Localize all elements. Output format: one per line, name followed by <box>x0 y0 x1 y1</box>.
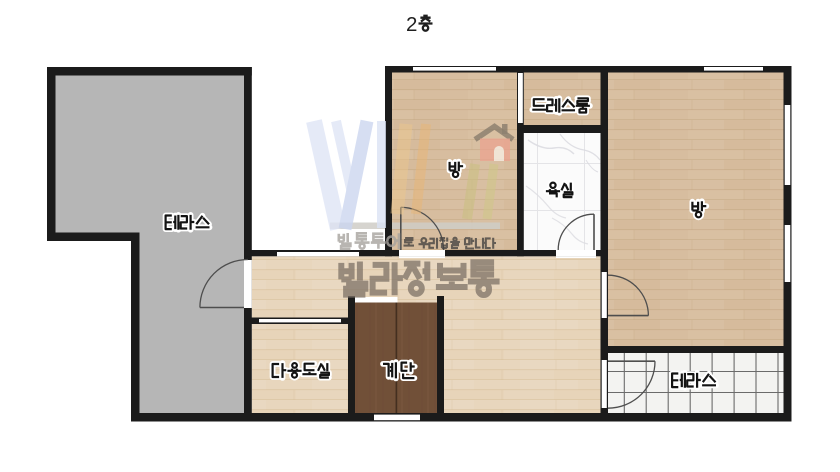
svg-text:2: 2 <box>406 13 417 36</box>
